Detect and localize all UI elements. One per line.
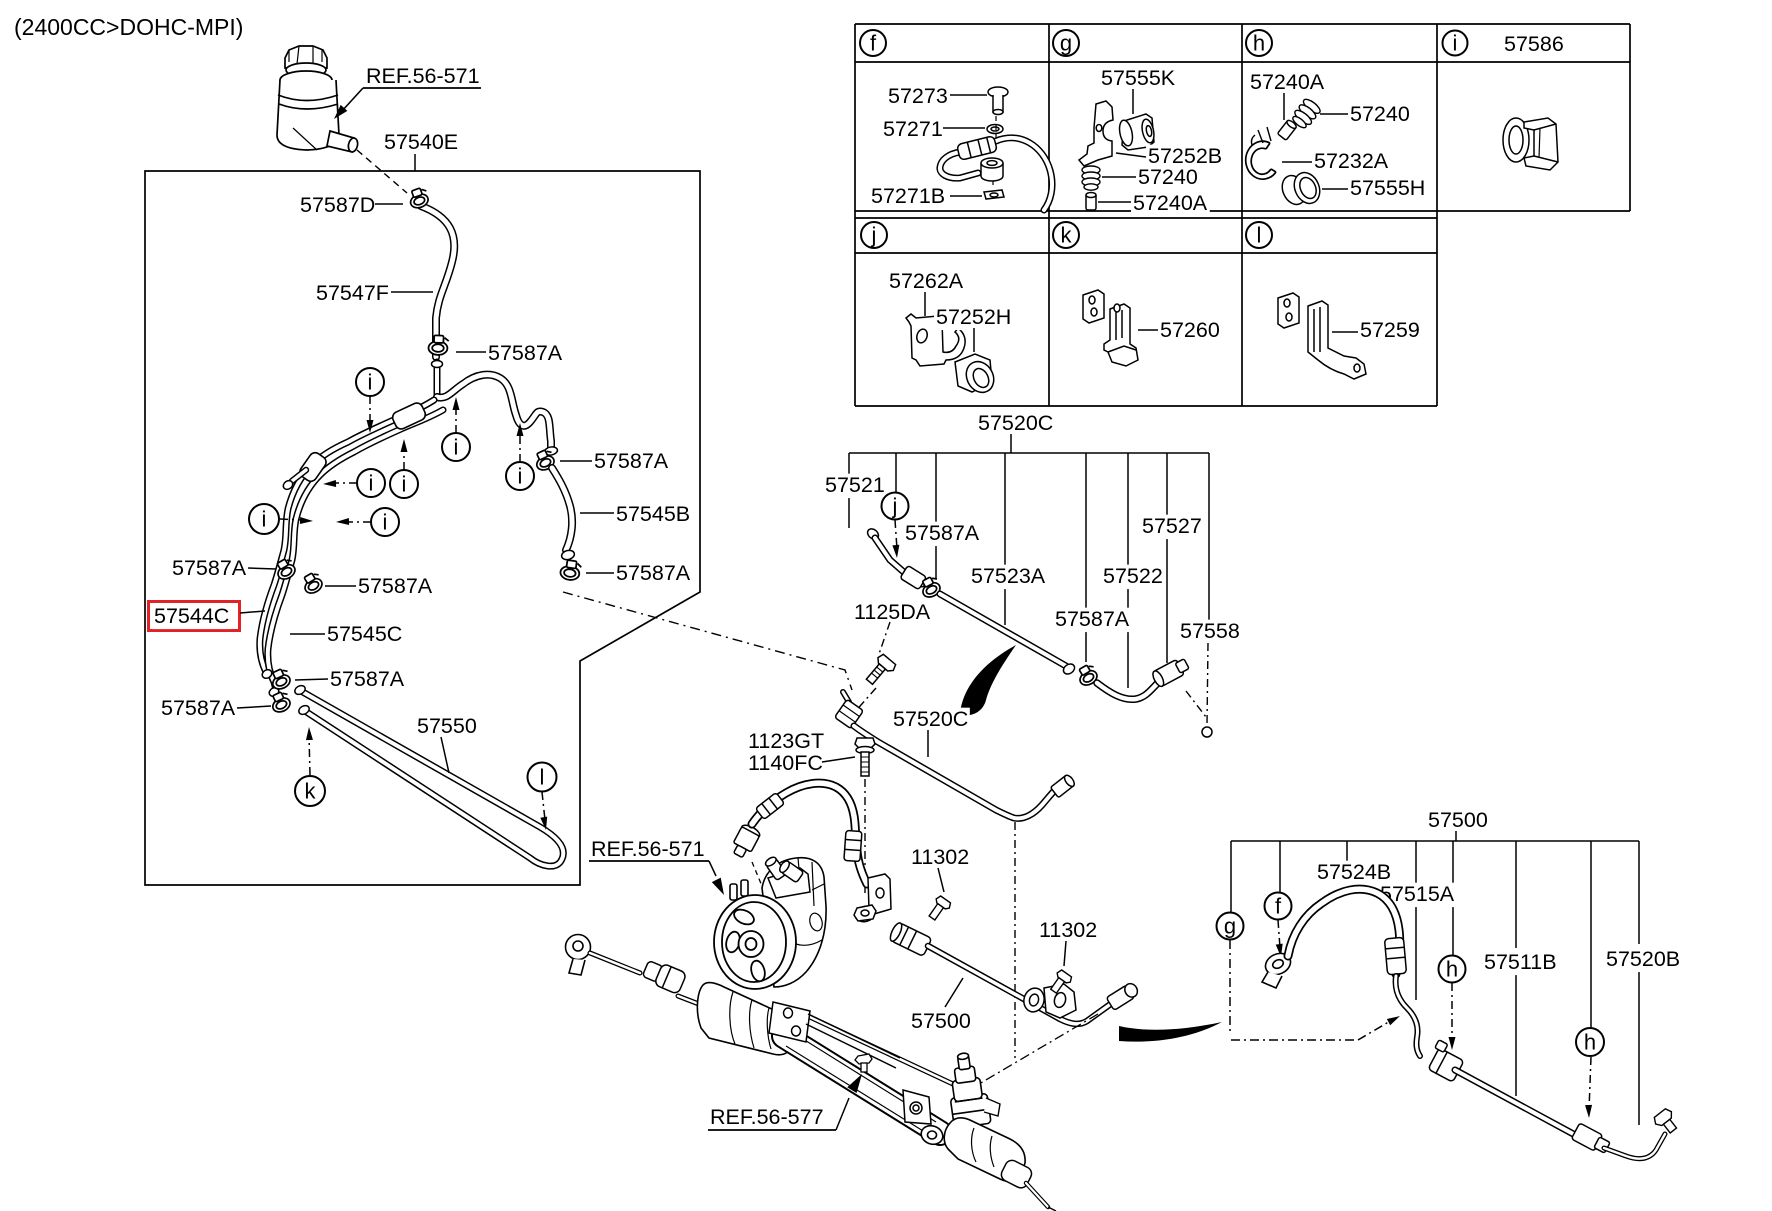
svg-text:j: j — [871, 223, 877, 248]
svg-text:57587A: 57587A — [1055, 607, 1130, 631]
svg-text:57587A: 57587A — [594, 449, 669, 473]
svg-text:REF.56-577: REF.56-577 — [710, 1105, 824, 1129]
svg-text:h: h — [1253, 31, 1265, 56]
svg-text:REF.56-571: REF.56-571 — [591, 837, 705, 861]
svg-text:57500: 57500 — [1428, 808, 1488, 832]
svg-text:57587A: 57587A — [330, 667, 405, 691]
svg-text:11302: 11302 — [911, 845, 969, 869]
svg-text:57240A: 57240A — [1133, 191, 1208, 215]
svg-text:57544C: 57544C — [154, 604, 229, 628]
svg-text:h: h — [1584, 1030, 1596, 1055]
svg-text:57240: 57240 — [1138, 165, 1198, 189]
svg-text:57540E: 57540E — [384, 130, 458, 154]
svg-text:REF.56-571: REF.56-571 — [366, 64, 480, 88]
svg-text:57527: 57527 — [1142, 514, 1202, 538]
svg-text:57558: 57558 — [1180, 619, 1240, 643]
svg-text:i: i — [402, 472, 407, 497]
svg-text:i: i — [518, 464, 523, 489]
svg-text:f: f — [1275, 894, 1282, 919]
svg-text:g: g — [1060, 31, 1072, 56]
svg-text:g: g — [1224, 914, 1236, 939]
svg-text:57521: 57521 — [825, 473, 885, 497]
svg-text:i: i — [454, 435, 459, 460]
svg-text:57240A: 57240A — [1250, 70, 1325, 94]
svg-text:1123GT: 1123GT — [748, 729, 824, 753]
svg-text:57260: 57260 — [1160, 318, 1220, 342]
svg-text:57555K: 57555K — [1101, 66, 1176, 90]
svg-text:j: j — [892, 494, 898, 519]
svg-text:i: i — [1453, 31, 1458, 56]
svg-text:57500: 57500 — [911, 1009, 971, 1033]
svg-text:57586: 57586 — [1504, 32, 1564, 56]
svg-text:i: i — [262, 507, 267, 532]
svg-text:57587D: 57587D — [300, 193, 375, 217]
svg-text:57273: 57273 — [888, 84, 948, 108]
svg-text:57271: 57271 — [883, 117, 943, 141]
svg-text:57587A: 57587A — [161, 696, 236, 720]
svg-text:57232A: 57232A — [1314, 149, 1389, 173]
svg-text:(2400CC>DOHC-MPI): (2400CC>DOHC-MPI) — [14, 14, 243, 40]
svg-text:k: k — [1061, 223, 1073, 248]
svg-text:57252H: 57252H — [936, 305, 1011, 329]
svg-text:57545B: 57545B — [616, 502, 690, 526]
svg-text:57587A: 57587A — [905, 521, 980, 545]
svg-text:57523A: 57523A — [971, 564, 1046, 588]
svg-text:57271B: 57271B — [871, 184, 945, 208]
svg-text:57547F: 57547F — [316, 281, 389, 305]
svg-text:f: f — [870, 31, 877, 56]
svg-text:i: i — [368, 370, 373, 395]
svg-text:57550: 57550 — [417, 714, 477, 738]
svg-text:57259: 57259 — [1360, 318, 1420, 342]
svg-text:57511B: 57511B — [1484, 950, 1557, 974]
svg-text:57520C: 57520C — [978, 411, 1053, 435]
svg-text:57240: 57240 — [1350, 102, 1410, 126]
svg-text:i: i — [369, 471, 374, 496]
svg-text:k: k — [305, 779, 317, 804]
svg-text:57262A: 57262A — [889, 269, 964, 293]
svg-text:57587A: 57587A — [172, 556, 247, 580]
svg-text:57587A: 57587A — [488, 341, 563, 365]
svg-text:57545C: 57545C — [327, 622, 402, 646]
svg-text:1140FC: 1140FC — [748, 751, 823, 775]
svg-text:i: i — [383, 510, 388, 535]
svg-text:l: l — [540, 765, 545, 790]
svg-text:l: l — [1257, 223, 1262, 248]
svg-text:57587A: 57587A — [616, 561, 691, 585]
svg-text:1125DA: 1125DA — [854, 600, 931, 624]
svg-text:57522: 57522 — [1103, 564, 1163, 588]
svg-text:57520B: 57520B — [1606, 947, 1680, 971]
svg-text:57555H: 57555H — [1350, 176, 1425, 200]
svg-text:h: h — [1446, 957, 1458, 982]
svg-text:57524B: 57524B — [1317, 860, 1391, 884]
svg-text:57520C: 57520C — [893, 707, 968, 731]
svg-text:11302: 11302 — [1039, 918, 1097, 942]
svg-text:57587A: 57587A — [358, 574, 433, 598]
